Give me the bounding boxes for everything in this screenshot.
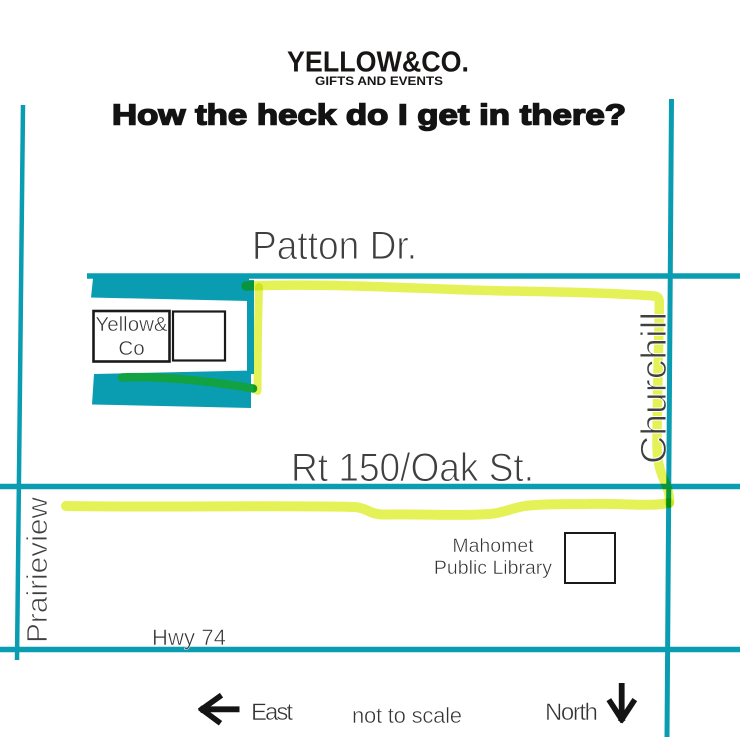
svg-text:Prairieview: Prairieview <box>22 496 54 643</box>
svg-text:Co: Co <box>118 337 144 360</box>
svg-text:Rt 150/Oak St.: Rt 150/Oak St. <box>291 446 534 490</box>
svg-text:North: North <box>545 699 598 726</box>
svg-text:Hwy 74: Hwy 74 <box>152 625 226 650</box>
svg-text:not to scale: not to scale <box>352 703 462 728</box>
svg-text:GIFTS AND EVENTS: GIFTS AND EVENTS <box>315 74 443 88</box>
svg-text:Public Library: Public Library <box>434 557 552 579</box>
svg-text:Patton Dr.: Patton Dr. <box>252 224 417 268</box>
svg-text:East: East <box>251 699 293 726</box>
svg-text:Yellow&: Yellow& <box>95 313 168 336</box>
svg-text:Mahomet: Mahomet <box>452 535 534 557</box>
svg-text:Churchill: Churchill <box>633 312 674 464</box>
svg-text:How the heck do I get in there: How the heck do I get in there? <box>112 100 626 132</box>
